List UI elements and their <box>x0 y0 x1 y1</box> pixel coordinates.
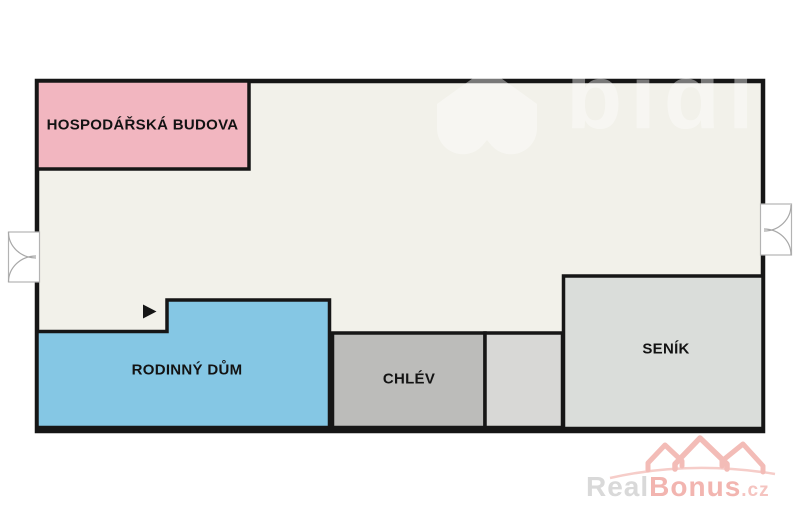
gate-right-icon <box>761 204 792 255</box>
gate-left-icon <box>9 232 40 282</box>
room-label-rodinny-dum: RODINNÝ DŮM <box>132 362 243 379</box>
room-label-senik: SENÍK <box>642 341 689 358</box>
room-label-chlev: CHLÉV <box>383 371 435 388</box>
room-label-hospodarska-budova: HOSPODÁŘSKÁ BUDOVA <box>47 117 239 134</box>
floor-plan-canvas: HOSPODÁŘSKÁ BUDOVA RODINNÝ DŮM CHLÉV SEN… <box>0 0 800 513</box>
floor-plan-drawing <box>0 0 800 513</box>
room-annex-unlabeled <box>485 333 563 428</box>
